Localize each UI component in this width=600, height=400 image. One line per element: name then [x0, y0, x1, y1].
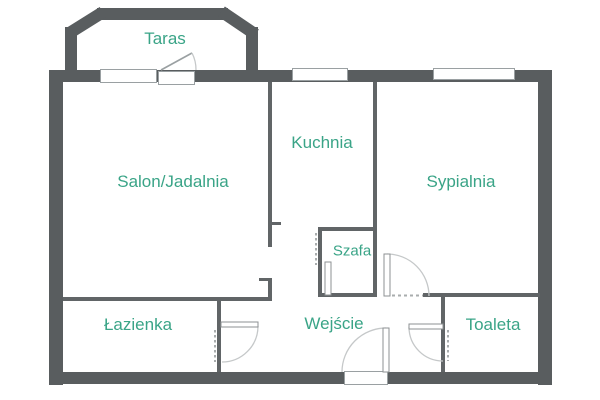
window-kitchen — [292, 68, 348, 81]
door-leaf-bedroom-icon — [384, 254, 390, 296]
wall-bathroom-hall — [217, 300, 221, 372]
room-label-wejscie: Wejście — [304, 314, 363, 334]
wall-jamb-salon-opening — [259, 278, 268, 281]
room-label-salon: Salon/Jadalnia — [117, 172, 229, 192]
window-bedroom — [433, 68, 515, 80]
door-leaf-terrace-icon — [161, 53, 192, 70]
wall-bathroom-top — [63, 297, 272, 301]
wall-terrace-right-diagonal — [218, 7, 259, 40]
door-leaf-bathroom-icon — [221, 322, 258, 327]
room-label-sypialnia: Sypialnia — [427, 172, 496, 192]
wall-exterior-right — [538, 70, 552, 385]
wall-toilet-hall — [441, 297, 445, 372]
wall-wardrobe-left — [318, 231, 322, 295]
wall-wardrobe-bottom — [318, 293, 377, 297]
door-arc-bathroom-icon — [222, 326, 258, 362]
door-arc-entrance-icon — [342, 328, 386, 372]
room-label-kuchnia: Kuchnia — [291, 133, 352, 153]
wall-jamb-kitchen-opening — [272, 222, 281, 225]
door-leaf-wardrobe-icon — [325, 262, 331, 295]
wall-exterior-left — [49, 70, 63, 385]
door-arc-toilet-icon — [409, 327, 443, 361]
floor-plan: Taras Salon/Jadalnia Kuchnia Sypialnia S… — [0, 0, 600, 400]
window-terrace — [100, 69, 157, 83]
room-label-taras: Taras — [144, 29, 186, 49]
room-label-toaleta: Toaleta — [466, 315, 521, 335]
door-leaf-toilet-icon — [409, 324, 443, 329]
door-opening-entrance — [344, 371, 388, 385]
door-arc-bedroom-icon — [387, 254, 429, 296]
door-arc-terrace-icon — [192, 53, 196, 70]
wall-exterior-bottom — [49, 372, 552, 384]
wall-terrace-top — [97, 8, 228, 20]
door-sill-terrace — [158, 71, 195, 85]
wall-kitchen-bedroom — [373, 82, 377, 297]
wall-wardrobe-top — [318, 227, 377, 231]
room-label-lazienka: Łazienka — [104, 315, 172, 335]
room-label-szafa: Szafa — [333, 243, 371, 260]
wall-terrace-left-diagonal — [65, 7, 106, 39]
door-leaf-entrance-icon — [383, 328, 389, 372]
door-symbols-layer — [0, 0, 600, 400]
